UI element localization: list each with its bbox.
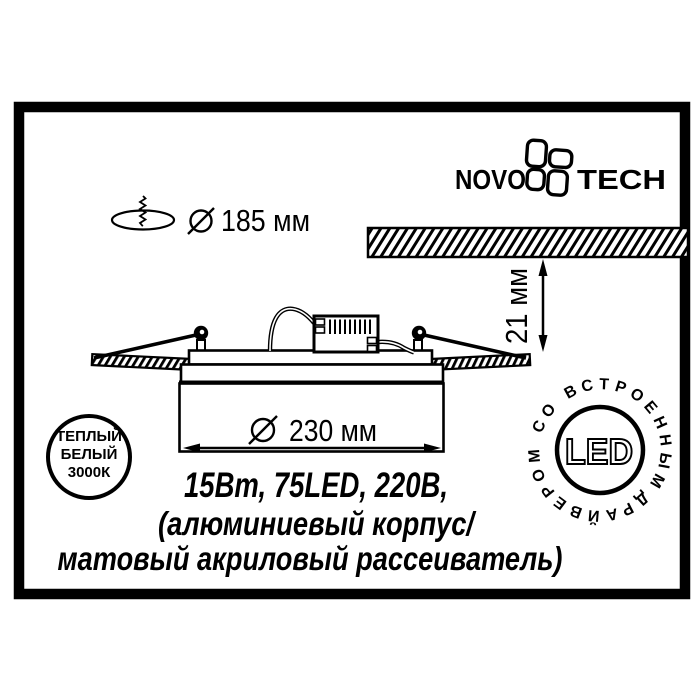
spec-line-3: матовый акриловый рассеиватель) — [58, 540, 563, 577]
diameter-symbol — [188, 208, 214, 234]
logo-text-right: TECH — [577, 164, 666, 195]
diameter-label: 230 мм — [289, 413, 377, 448]
driver-ribs — [330, 320, 370, 335]
housing-ring — [181, 365, 443, 383]
badge-line-3: 3000К — [68, 464, 111, 481]
diagram-page: NOVO TECH 185 мм 21 мм — [0, 0, 700, 700]
novotech-flower-icon — [524, 140, 573, 196]
spec-line-2: (алюминиевый корпус/ — [158, 505, 477, 542]
recess-depth-label: 21 мм — [499, 268, 534, 344]
ceiling-panel-hatched — [368, 228, 688, 257]
arrowhead-up-icon — [539, 259, 548, 276]
arrowhead-down-icon — [539, 335, 548, 352]
wire-left — [270, 309, 314, 351]
spec-line-1: 15Вт, 75LED, 220В, — [184, 466, 448, 505]
hole-diameter-label: 185 мм — [221, 203, 310, 238]
badge-line-1: ТЕПЛЫЙ — [56, 427, 122, 445]
novotech-logo: NOVO TECH — [455, 140, 666, 196]
cutout-note: 185 мм — [112, 196, 310, 238]
logo-text-left: NOVO — [455, 164, 526, 195]
fixture-top-plate — [189, 351, 432, 365]
led-driver-box — [270, 309, 414, 353]
led-driver-badge: LED ДРАЙВЕРОМ СО ВСТРОЕННЫМ — [526, 376, 674, 526]
spec-text: 15Вт, 75LED, 220В, (алюминиевый корпус/ … — [58, 466, 563, 577]
diagram-canvas: NOVO TECH 185 мм 21 мм — [0, 0, 700, 700]
screw-in-ceiling-hole-icon — [112, 196, 174, 230]
recess-depth-dimension: 21 мм — [499, 259, 548, 352]
led-badge-center-label: LED — [565, 431, 633, 472]
warm-white-badge: ТЕПЛЫЙ БЕЛЫЙ 3000К — [48, 416, 130, 498]
badge-line-2: БЕЛЫЙ — [61, 445, 118, 463]
fixture-cross-section: 230 мм — [92, 309, 530, 453]
